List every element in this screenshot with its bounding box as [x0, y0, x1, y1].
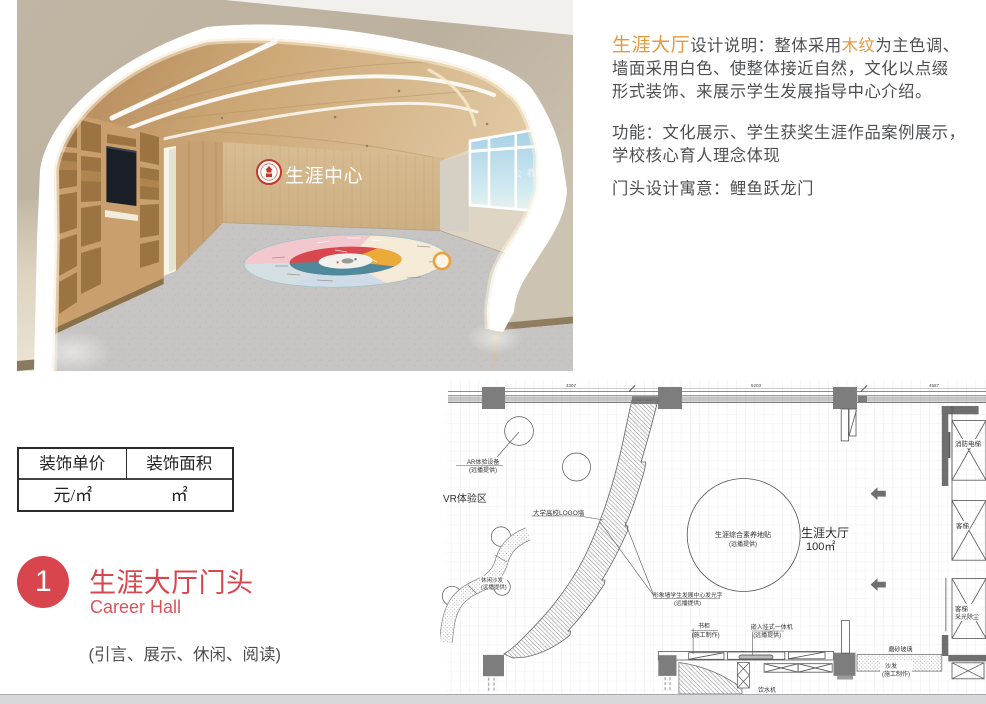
svg-text:生涯中心: 生涯中心 [285, 165, 363, 187]
svg-text:嵌入挂式一体机: 嵌入挂式一体机 [751, 623, 793, 631]
svg-text:(远播提供): (远播提供) [469, 466, 497, 474]
svg-text:饮水机: 饮水机 [758, 686, 776, 694]
svg-text:VR体验区: VR体验区 [443, 492, 487, 505]
svg-text:采光除尘: 采光除尘 [955, 613, 979, 621]
svg-text:(远播提供): (远播提供) [753, 631, 781, 639]
svg-text:生涯大厅: 生涯大厅 [801, 526, 849, 540]
svg-text:形象墙学生发展中心发光字: 形象墙学生发展中心发光字 [653, 591, 723, 599]
svg-text:4307: 4307 [566, 383, 577, 388]
svg-text:5203: 5203 [751, 383, 762, 388]
svg-text:4587: 4587 [929, 383, 940, 388]
svg-text:消防电梯: 消防电梯 [955, 439, 982, 448]
svg-text:100㎡: 100㎡ [806, 540, 835, 553]
svg-text:公: 公 [513, 169, 522, 179]
svg-text:(远播提供): (远播提供) [481, 583, 507, 591]
svg-text:休闲沙发: 休闲沙发 [481, 576, 504, 584]
svg-text:客梯: 客梯 [956, 521, 970, 530]
svg-text:客梯: 客梯 [955, 604, 969, 613]
svg-text:(远播提供): (远播提供) [674, 599, 701, 607]
svg-text:沙发: 沙发 [885, 662, 897, 670]
svg-text:(远播提供): (远播提供) [729, 540, 757, 548]
svg-text:(施工制作): (施工制作) [882, 670, 910, 678]
svg-text:生涯综合素养地贴: 生涯综合素养地贴 [715, 530, 771, 539]
svg-text:磨砂玻璃: 磨砂玻璃 [889, 646, 913, 654]
svg-text:AR体验设备: AR体验设备 [467, 458, 499, 466]
svg-text:大学高校LOGO墙: 大学高校LOGO墙 [533, 508, 585, 517]
svg-text:(施工制作): (施工制作) [692, 631, 720, 639]
svg-text:书柜: 书柜 [698, 622, 710, 630]
